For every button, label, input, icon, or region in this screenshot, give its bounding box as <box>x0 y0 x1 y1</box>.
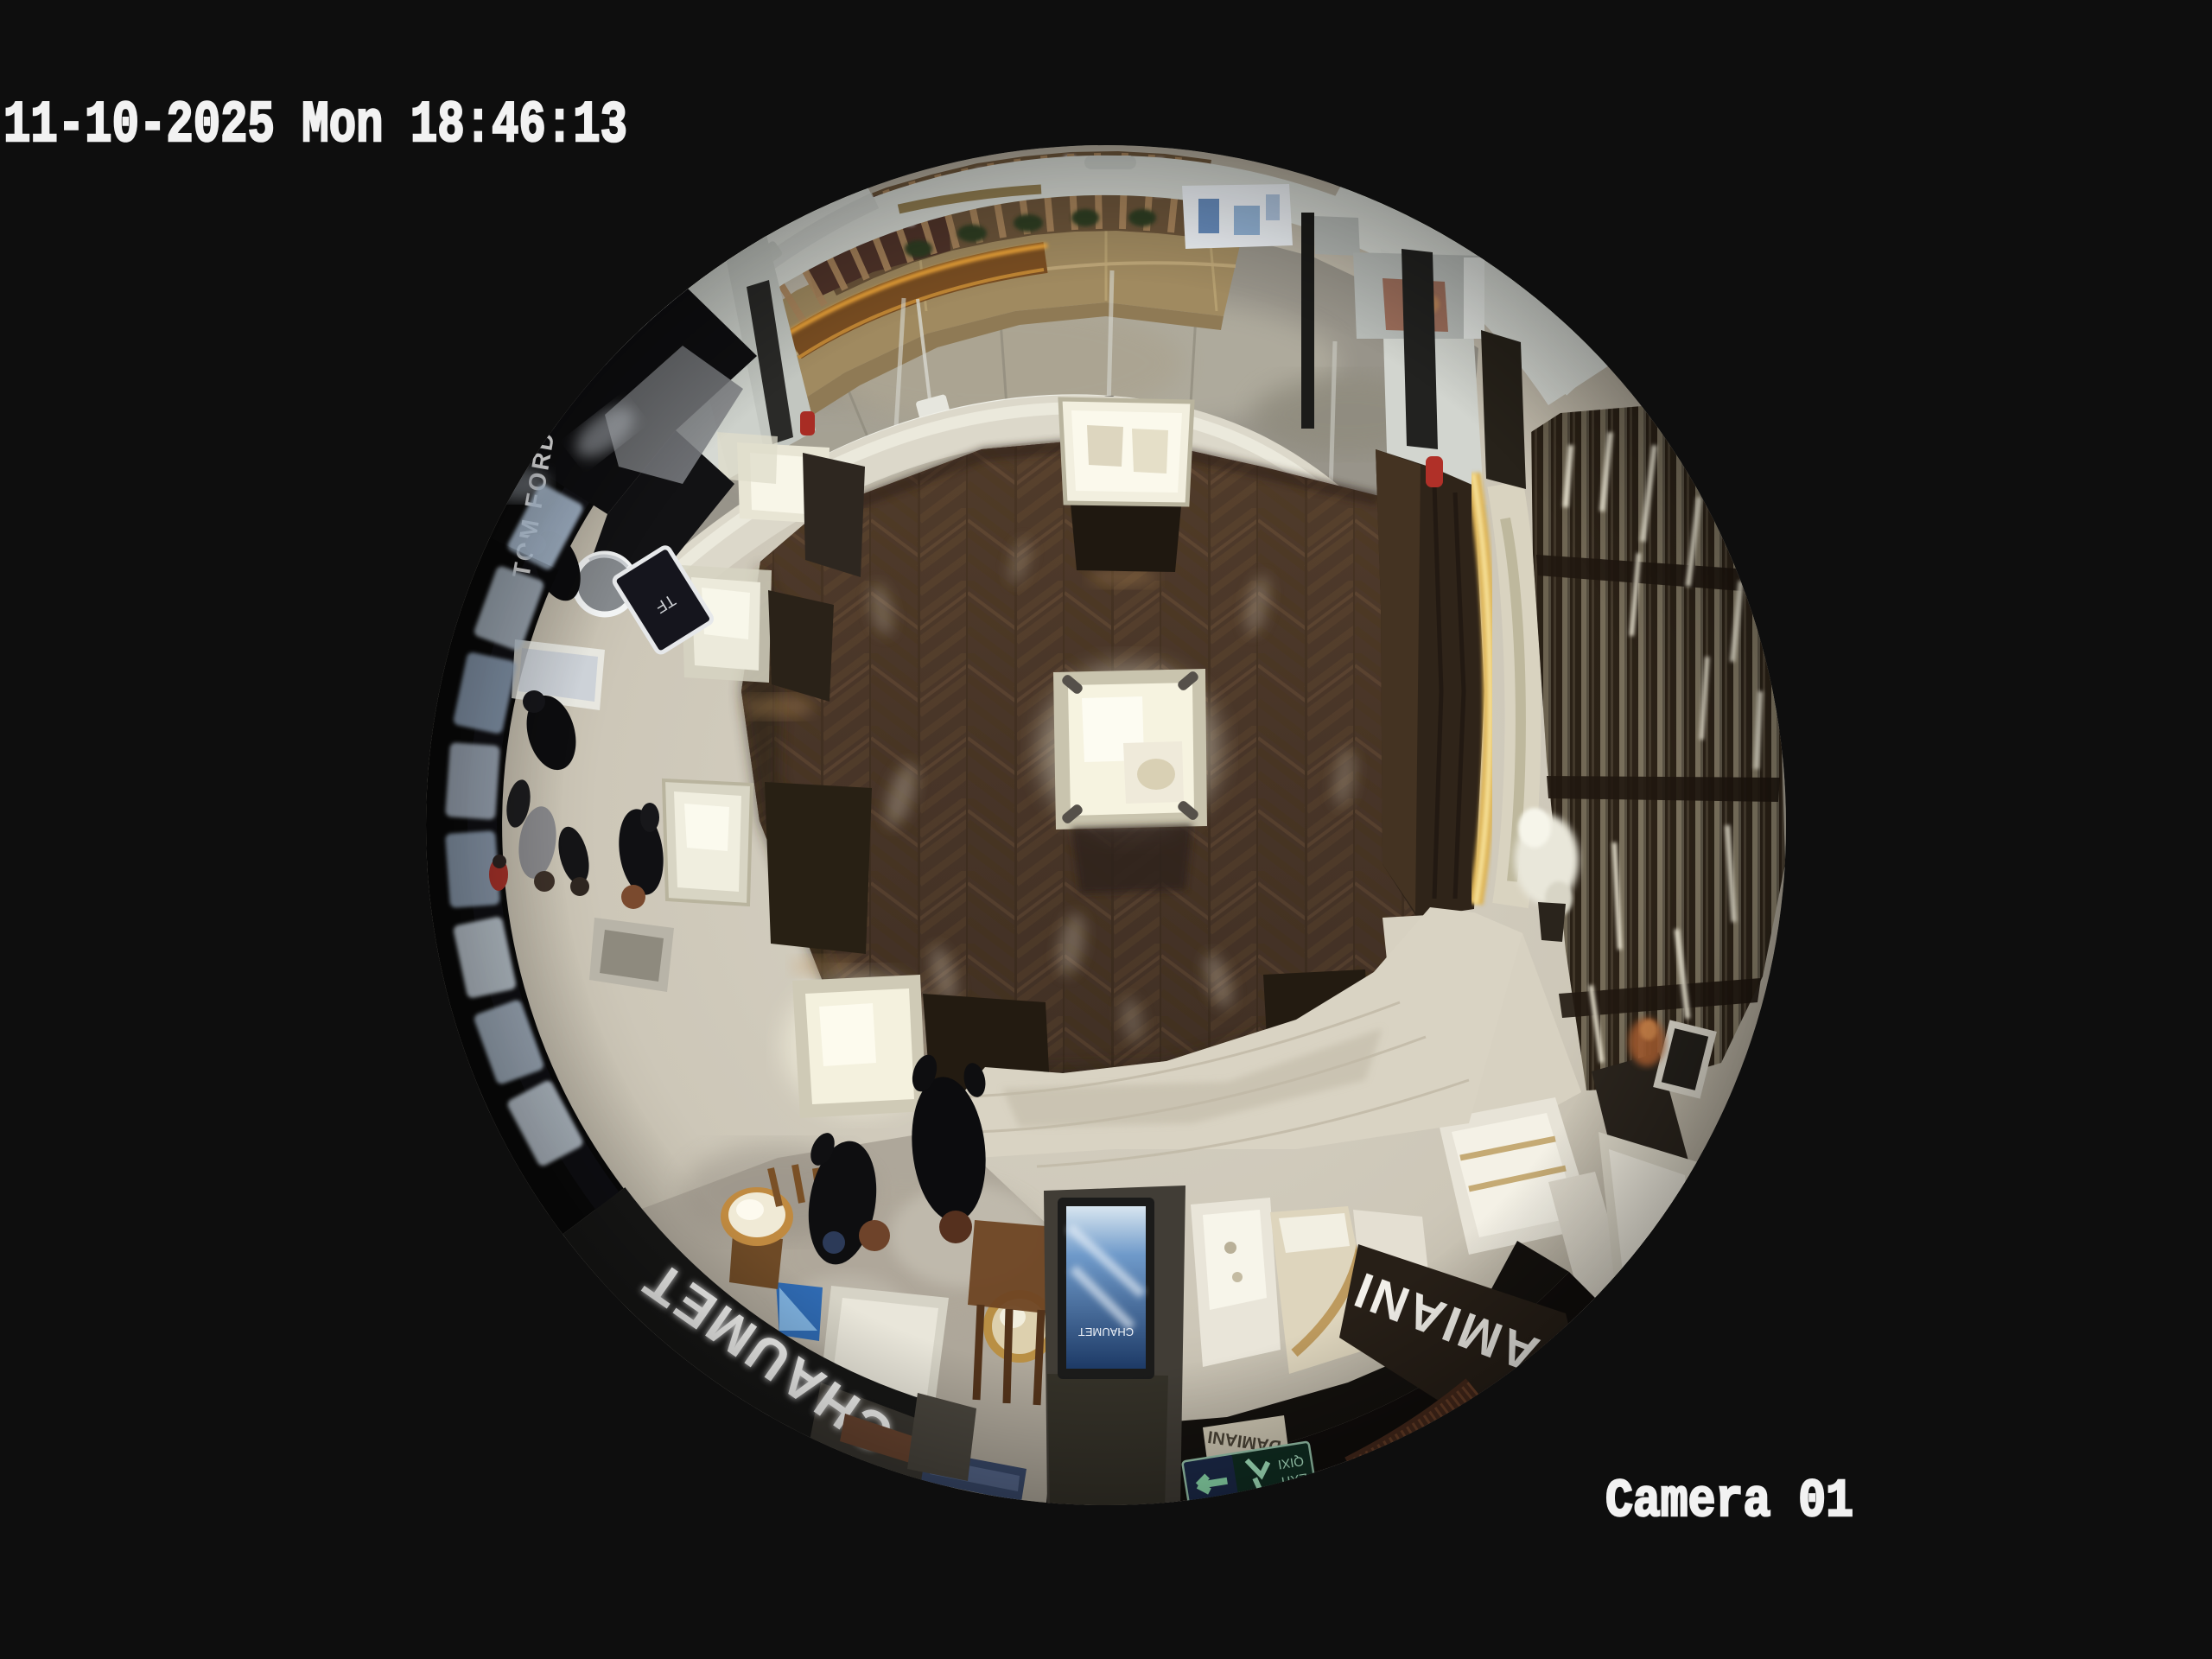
svg-text:Camera 01: Camera 01 <box>1605 1471 1853 1532</box>
svg-text:11-10-2025 Mon 18:46:13: 11-10-2025 Mon 18:46:13 <box>3 92 627 159</box>
